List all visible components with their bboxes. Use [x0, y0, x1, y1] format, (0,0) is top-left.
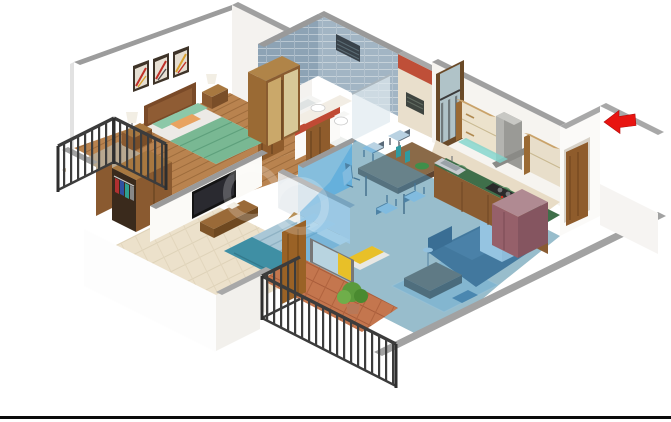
entry-door-leaf — [566, 142, 588, 226]
wardrobe-door — [268, 77, 281, 146]
clothes — [130, 185, 134, 201]
floorplan-render — [0, 0, 671, 422]
clothes — [120, 180, 124, 196]
master-wardrobe — [248, 56, 300, 147]
clothes — [115, 178, 119, 194]
wardrobe-door — [284, 69, 298, 137]
wash-basin — [311, 104, 325, 111]
bottle — [405, 150, 410, 163]
stove-knob — [501, 196, 504, 199]
table-lamp — [126, 112, 138, 123]
fruit-bowl — [415, 163, 429, 170]
clothes — [125, 183, 129, 199]
bottle — [396, 145, 401, 158]
footer-rule — [0, 416, 671, 419]
floorplan-canvas — [0, 0, 671, 422]
